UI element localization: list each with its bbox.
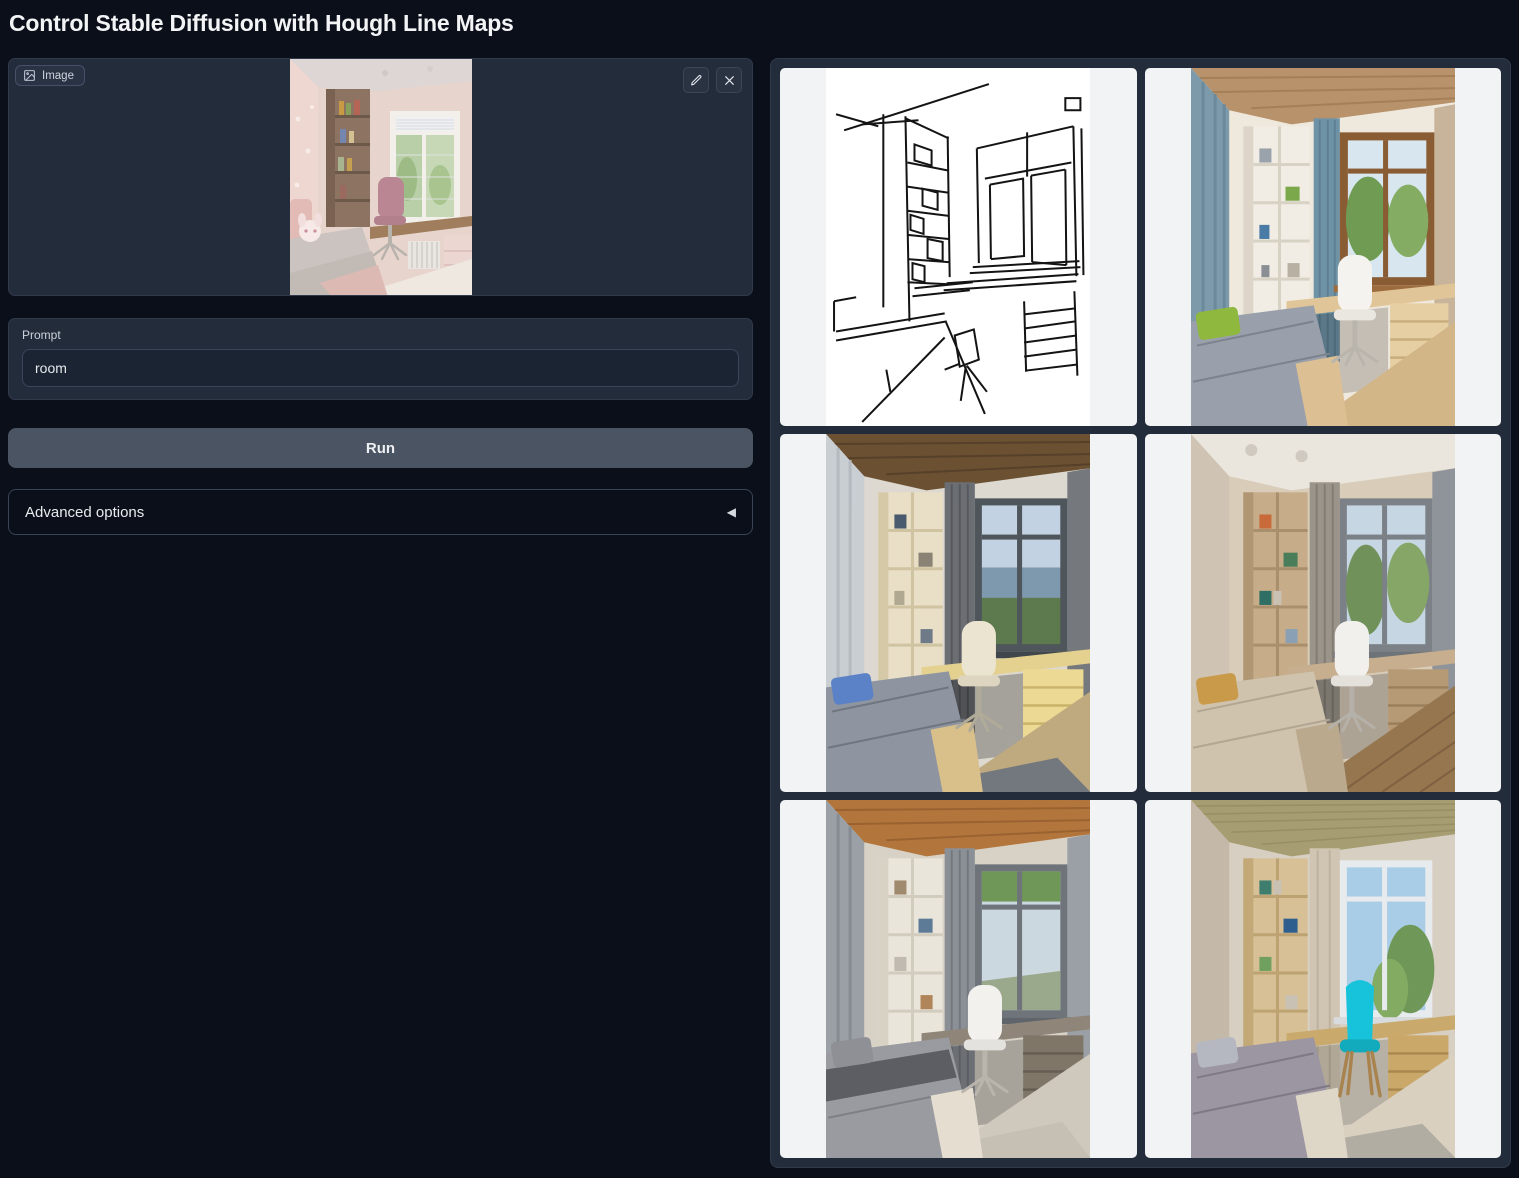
prompt-component: Prompt xyxy=(8,318,753,400)
clear-image-button[interactable] xyxy=(716,67,742,93)
gallery-item-generated-4[interactable] xyxy=(780,800,1137,1158)
clear-icon xyxy=(723,74,736,87)
image-input-component: Image xyxy=(8,58,753,296)
generated-room-5-image xyxy=(1191,800,1455,1158)
generated-room-3-image xyxy=(1191,434,1455,792)
gallery-item-generated-5[interactable] xyxy=(1145,800,1502,1158)
generated-room-1-image xyxy=(1191,68,1455,426)
results-column xyxy=(770,58,1511,1168)
advanced-options-label: Advanced options xyxy=(25,504,144,521)
image-toolbar xyxy=(683,67,742,93)
chevron-left-icon: ◀ xyxy=(727,505,736,519)
controls-column: Image xyxy=(8,58,753,535)
edit-image-button[interactable] xyxy=(683,67,709,93)
gallery-item-generated-1[interactable] xyxy=(1145,68,1502,426)
app: Control Stable Diffusion with Hough Line… xyxy=(0,0,1519,1178)
prompt-label: Prompt xyxy=(22,328,739,342)
page-title: Control Stable Diffusion with Hough Line… xyxy=(9,10,1511,37)
gallery-item-hough-map[interactable] xyxy=(780,68,1137,426)
generated-room-2-image xyxy=(826,434,1090,792)
image-input-label: Image xyxy=(15,65,85,86)
main-layout: Image xyxy=(8,58,1511,1168)
gallery-grid xyxy=(780,68,1501,1158)
gallery-item-generated-2[interactable] xyxy=(780,434,1137,792)
edit-icon xyxy=(690,74,703,87)
uploaded-image xyxy=(290,59,472,296)
image-input-label-text: Image xyxy=(42,70,74,82)
generated-room-4-image xyxy=(826,800,1090,1158)
hough-line-map-image xyxy=(826,68,1090,426)
image-icon xyxy=(23,69,36,82)
gallery-item-generated-3[interactable] xyxy=(1145,434,1502,792)
prompt-input[interactable] xyxy=(22,349,739,387)
result-gallery xyxy=(770,58,1511,1168)
advanced-options-accordion[interactable]: Advanced options ◀ xyxy=(8,489,753,535)
run-button[interactable]: Run xyxy=(8,428,753,468)
